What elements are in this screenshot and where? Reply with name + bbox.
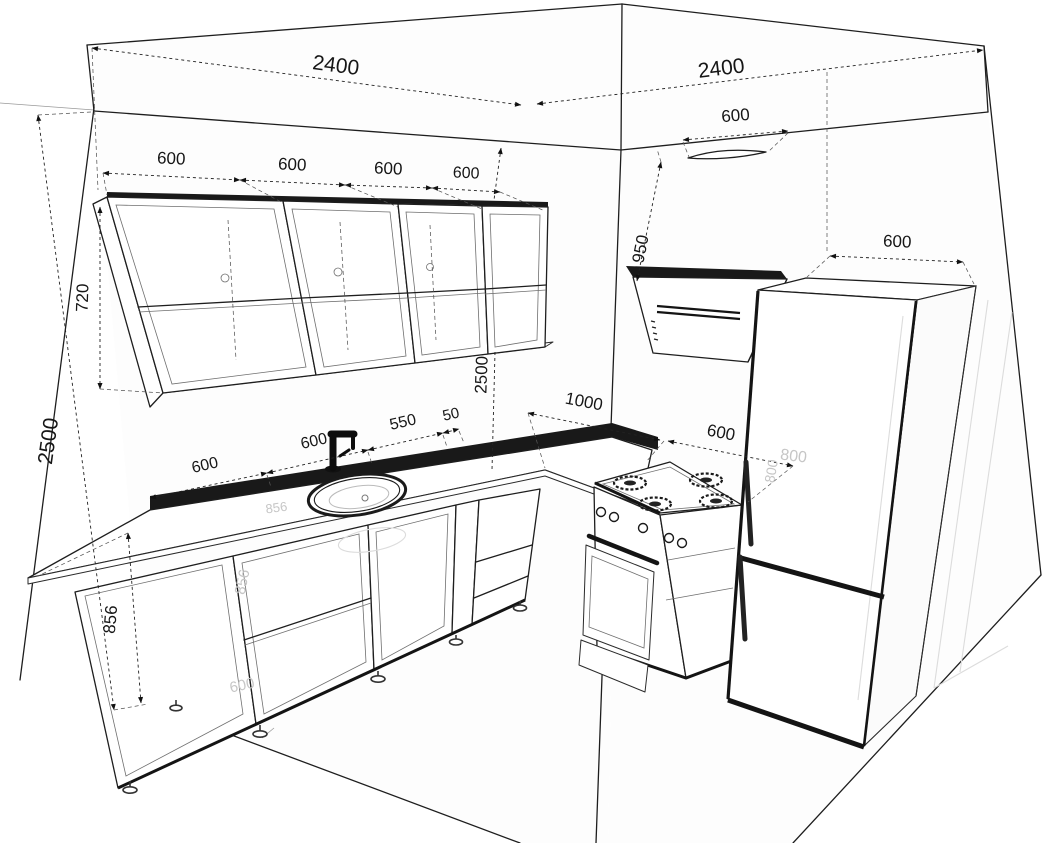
ghost-label-3: 856 xyxy=(265,499,289,517)
dim-upper-4: 600 xyxy=(452,164,480,182)
dim-hood-width: 600 xyxy=(721,105,751,126)
dim-upper-height: 720 xyxy=(73,283,93,312)
dim-fridge-width: 600 xyxy=(883,231,912,251)
dim-corner-height: 2500 xyxy=(471,356,491,394)
dim-upper-2: 600 xyxy=(278,154,307,174)
gas-stove xyxy=(579,462,742,692)
kitchen-drawing-canvas: 2400 2400 600 600 600 600 720 2500 856 xyxy=(0,0,1056,843)
dim-base-height: 856 xyxy=(100,605,121,635)
ext-wall-height-top xyxy=(38,112,92,115)
dim-upper-1: 600 xyxy=(157,148,186,168)
kitchen-corner-technical-drawing: 2400 2400 600 600 600 600 720 2500 856 xyxy=(0,0,1056,843)
dim-wall-height: 2500 xyxy=(34,416,63,465)
ghost-label-4: 800 xyxy=(779,446,808,466)
ceiling-line-extension xyxy=(0,103,94,110)
dim-upper-3: 600 xyxy=(374,158,403,178)
